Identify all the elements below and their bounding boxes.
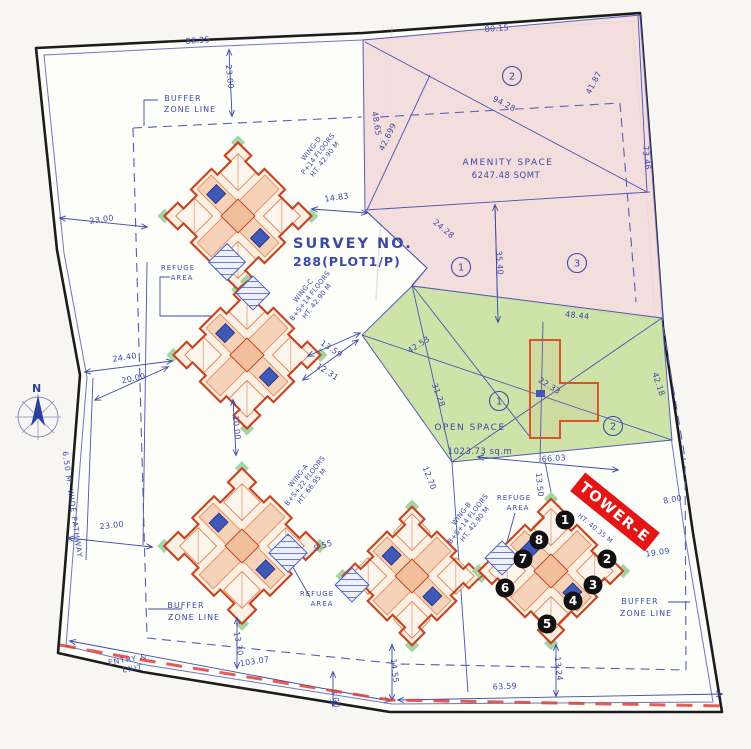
svg-text:3: 3 [589,578,597,592]
map-label: EXIT [122,662,144,674]
svg-text:3: 3 [574,259,580,270]
svg-text:4: 4 [569,594,577,608]
map-label: REFUGE [161,264,195,272]
svg-text:1: 1 [496,397,502,408]
north-label: N [32,382,41,395]
tower-e-marker-6[interactable]: 6 [496,579,515,598]
tower-e-marker-8[interactable]: 8 [530,531,549,550]
scanned-site-plan-page: 80.1588.3523.0094.2841.8742.69948.6573.4… [0,0,751,749]
tower-e-marker-4[interactable]: 4 [564,592,583,611]
svg-text:2: 2 [509,72,515,83]
open-space-area-value: 1023.73 sq.m [448,447,513,457]
map-label: AREA [171,274,194,282]
open-space-label: OPEN SPACE [434,423,505,433]
map-label: ZONE LINE [620,609,672,618]
map-label: AREA [311,600,334,608]
map-label: BUFFER [164,94,201,103]
amenity-space-area-value: 6247.48 SQMT [472,171,541,181]
map-label: AREA [507,504,530,512]
svg-text:6: 6 [501,581,509,595]
tower-e-marker-3[interactable]: 3 [584,576,603,595]
north-arrow: N [15,382,61,440]
structure-core [536,390,545,397]
survey-number-title: SURVEY NO. [293,236,413,252]
site-plan-drawing: 80.1588.3523.0094.2841.8742.69948.6573.4… [0,0,751,749]
tower-e-marker-2[interactable]: 2 [598,550,617,569]
dimension-label: 35.40 [494,250,505,275]
tower-e-marker-5[interactable]: 5 [538,615,557,634]
map-label: REFUGE [300,590,334,598]
dimension-label: 66.03 [541,453,566,464]
tower-e-marker-7[interactable]: 7 [514,550,533,569]
map-label: REFUGE [497,494,531,502]
map-label: ZONE LINE [164,105,216,114]
survey-number-plot: 288(PLOT1/P) [293,254,401,269]
dimension-label: 80.15 [484,23,509,34]
svg-text:8: 8 [535,533,543,547]
amenity-space-label: AMENITY SPACE [463,158,554,168]
svg-text:7: 7 [519,552,527,566]
map-label: BUFFER [167,601,204,610]
dimension-label: 63.59 [492,681,517,691]
dimension-label: 88.35 [185,35,210,46]
svg-text:1: 1 [458,263,464,274]
svg-text:2: 2 [610,422,616,433]
svg-text:5: 5 [543,617,551,631]
tower-e-marker-1[interactable]: 1 [556,511,575,530]
svg-text:1: 1 [561,513,569,527]
svg-text:2: 2 [603,552,611,566]
map-label: BUFFER [621,597,658,606]
map-label: ZONE LINE [168,613,220,622]
